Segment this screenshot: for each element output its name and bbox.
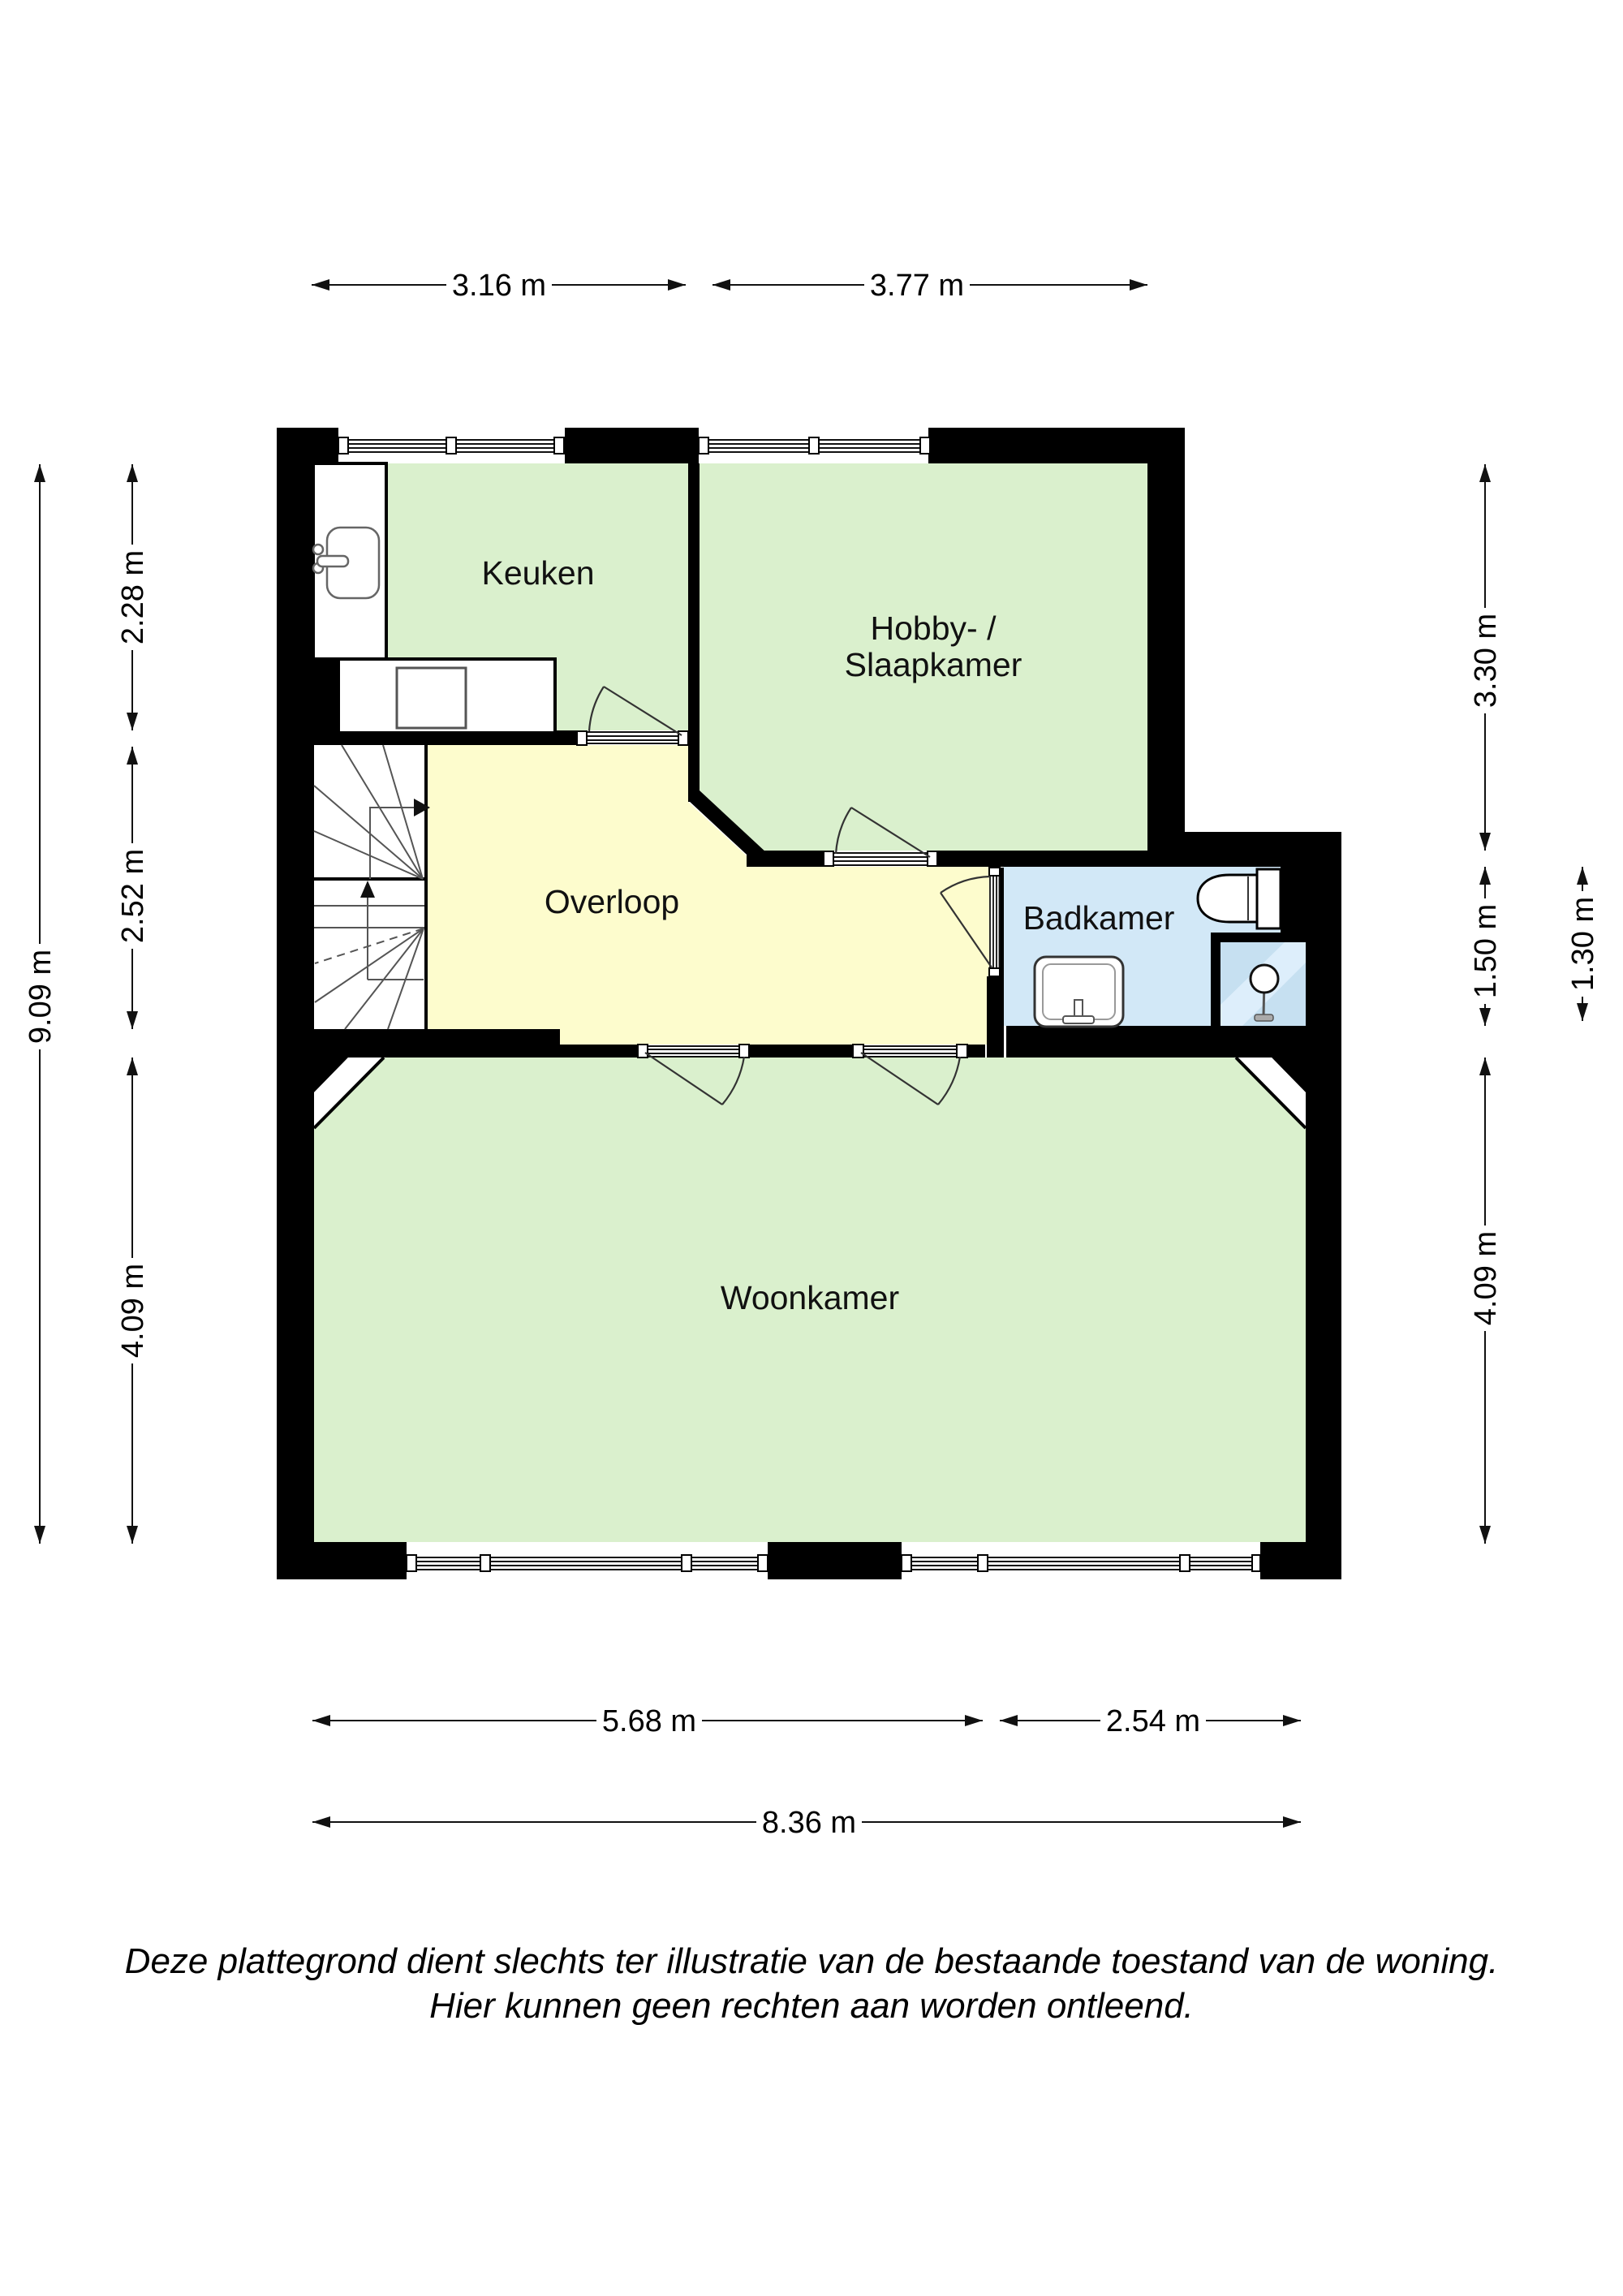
svg-text:Badkamer: Badkamer [1023, 899, 1175, 937]
svg-text:1.50 m: 1.50 m [1469, 904, 1503, 998]
svg-text:Woonkamer: Woonkamer [721, 1279, 899, 1316]
svg-text:Overloop: Overloop [545, 883, 679, 920]
svg-text:3.16 m: 3.16 m [452, 269, 546, 303]
svg-text:2.52 m: 2.52 m [116, 849, 150, 943]
svg-text:2.54 m: 2.54 m [1106, 1704, 1200, 1738]
svg-text:2.28 m: 2.28 m [116, 550, 150, 644]
svg-text:Keuken: Keuken [481, 554, 594, 592]
svg-text:Deze plattegrond dient slechts: Deze plattegrond dient slechts ter illus… [125, 1941, 1499, 1981]
svg-text:Slaapkamer: Slaapkamer [845, 646, 1022, 683]
svg-text:3.30 m: 3.30 m [1469, 614, 1503, 708]
svg-text:3.77 m: 3.77 m [870, 269, 964, 303]
svg-text:5.68 m: 5.68 m [602, 1704, 696, 1738]
svg-text:4.09 m: 4.09 m [116, 1264, 150, 1358]
svg-text:8.36 m: 8.36 m [762, 1806, 856, 1840]
svg-text:9.09 m: 9.09 m [24, 950, 58, 1044]
svg-text:Hier kunnen geen rechten aan w: Hier kunnen geen rechten aan worden ontl… [429, 1986, 1194, 2026]
svg-text:Hobby- /: Hobby- / [871, 610, 997, 647]
svg-text:4.09 m: 4.09 m [1469, 1231, 1503, 1325]
svg-text:1.30 m: 1.30 m [1566, 897, 1600, 991]
